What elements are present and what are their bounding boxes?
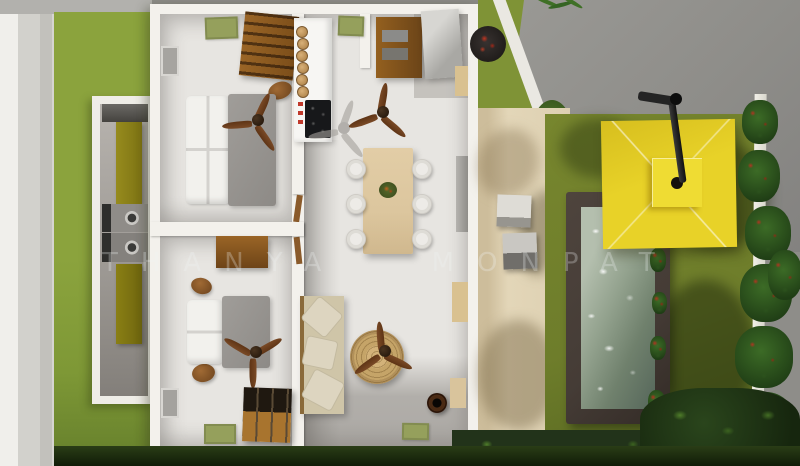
living-green-doormat [402, 423, 429, 440]
bedroom1-green-rug [205, 16, 239, 39]
dining-chair [346, 229, 366, 249]
right-wall-door-panel-mid [452, 282, 468, 322]
plate-stack [297, 86, 309, 98]
fence-climbing-plant [738, 150, 780, 202]
plate-stack [297, 38, 309, 50]
fence-climbing-plant [768, 250, 800, 300]
fan-blade [250, 359, 257, 389]
outdoor-stool-1 [496, 194, 531, 227]
bedroom2-bed-blanket [222, 296, 270, 368]
bedroom2-green-mat [204, 424, 236, 444]
bedroom2-window [161, 388, 179, 418]
fence-climbing-plant [735, 326, 793, 388]
umbrella-arm-joint [670, 93, 682, 105]
fan-hub [250, 346, 262, 358]
table-centerpiece-flowers [379, 182, 397, 198]
bedroom2-dresser [242, 387, 292, 443]
bedroom2-bed-pillows [187, 300, 223, 364]
watermark-text: THANYA MONPAT [102, 248, 742, 278]
washing-machine-1 [102, 204, 148, 232]
wardrobe-clothes-shelf1 [382, 30, 408, 42]
interior-wall-horizontal [150, 222, 304, 236]
potted-red-flowers [470, 26, 506, 62]
fence-climbing-plant [742, 100, 778, 144]
plate-stack [296, 50, 308, 62]
fan-shadow-hub [338, 122, 350, 134]
sofa-cushion [301, 335, 339, 371]
fan-hub [252, 114, 264, 126]
wardrobe-clothes-shelf2 [382, 48, 408, 60]
dining-table [363, 148, 413, 254]
plate-stack [297, 62, 309, 74]
bedroom1-bookshelf [239, 11, 299, 80]
fan-hub [379, 345, 391, 357]
kitchen-green-mat [338, 16, 365, 37]
right-wall-window [456, 156, 468, 232]
stove-knobs [298, 102, 303, 128]
right-wall-door-panel-top [455, 66, 468, 96]
plate-stack [296, 74, 308, 86]
bottom-hedge [54, 446, 800, 466]
terrace-door-mat [450, 378, 466, 408]
dining-chair [412, 159, 432, 179]
render-stage: THANYA MONPAT [0, 0, 800, 466]
dining-chair [412, 229, 432, 249]
dining-chair [346, 194, 366, 214]
dining-chair [412, 194, 432, 214]
bedroom1-bed-pillows [186, 96, 230, 204]
annex-cabinet [102, 104, 148, 122]
fan-hub [377, 106, 389, 118]
left-boundary-wall [0, 0, 60, 466]
dining-chair [346, 159, 366, 179]
poolside-flower-plant [652, 292, 667, 314]
planter-pot [427, 393, 447, 413]
annex-door-upper [116, 122, 142, 204]
poolside-flower-plant [650, 336, 666, 360]
bedroom1-bed-blanket [228, 94, 276, 206]
plate-stack [296, 26, 308, 38]
bedroom1-window [161, 46, 179, 76]
